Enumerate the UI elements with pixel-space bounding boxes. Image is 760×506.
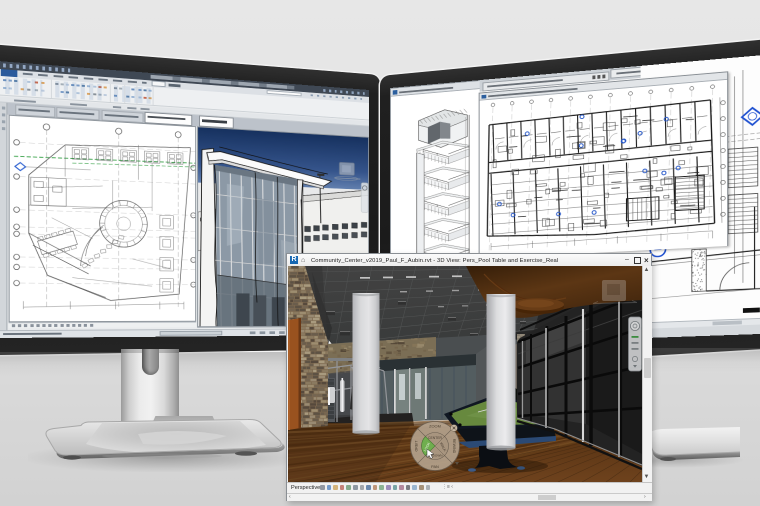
svg-text:PAN: PAN bbox=[431, 464, 439, 469]
svg-text:CENTER: CENTER bbox=[428, 436, 442, 440]
svg-text:REWIND: REWIND bbox=[452, 439, 456, 454]
svg-text:ORBIT: ORBIT bbox=[415, 440, 419, 452]
svg-text:ZOOM: ZOOM bbox=[429, 424, 441, 429]
